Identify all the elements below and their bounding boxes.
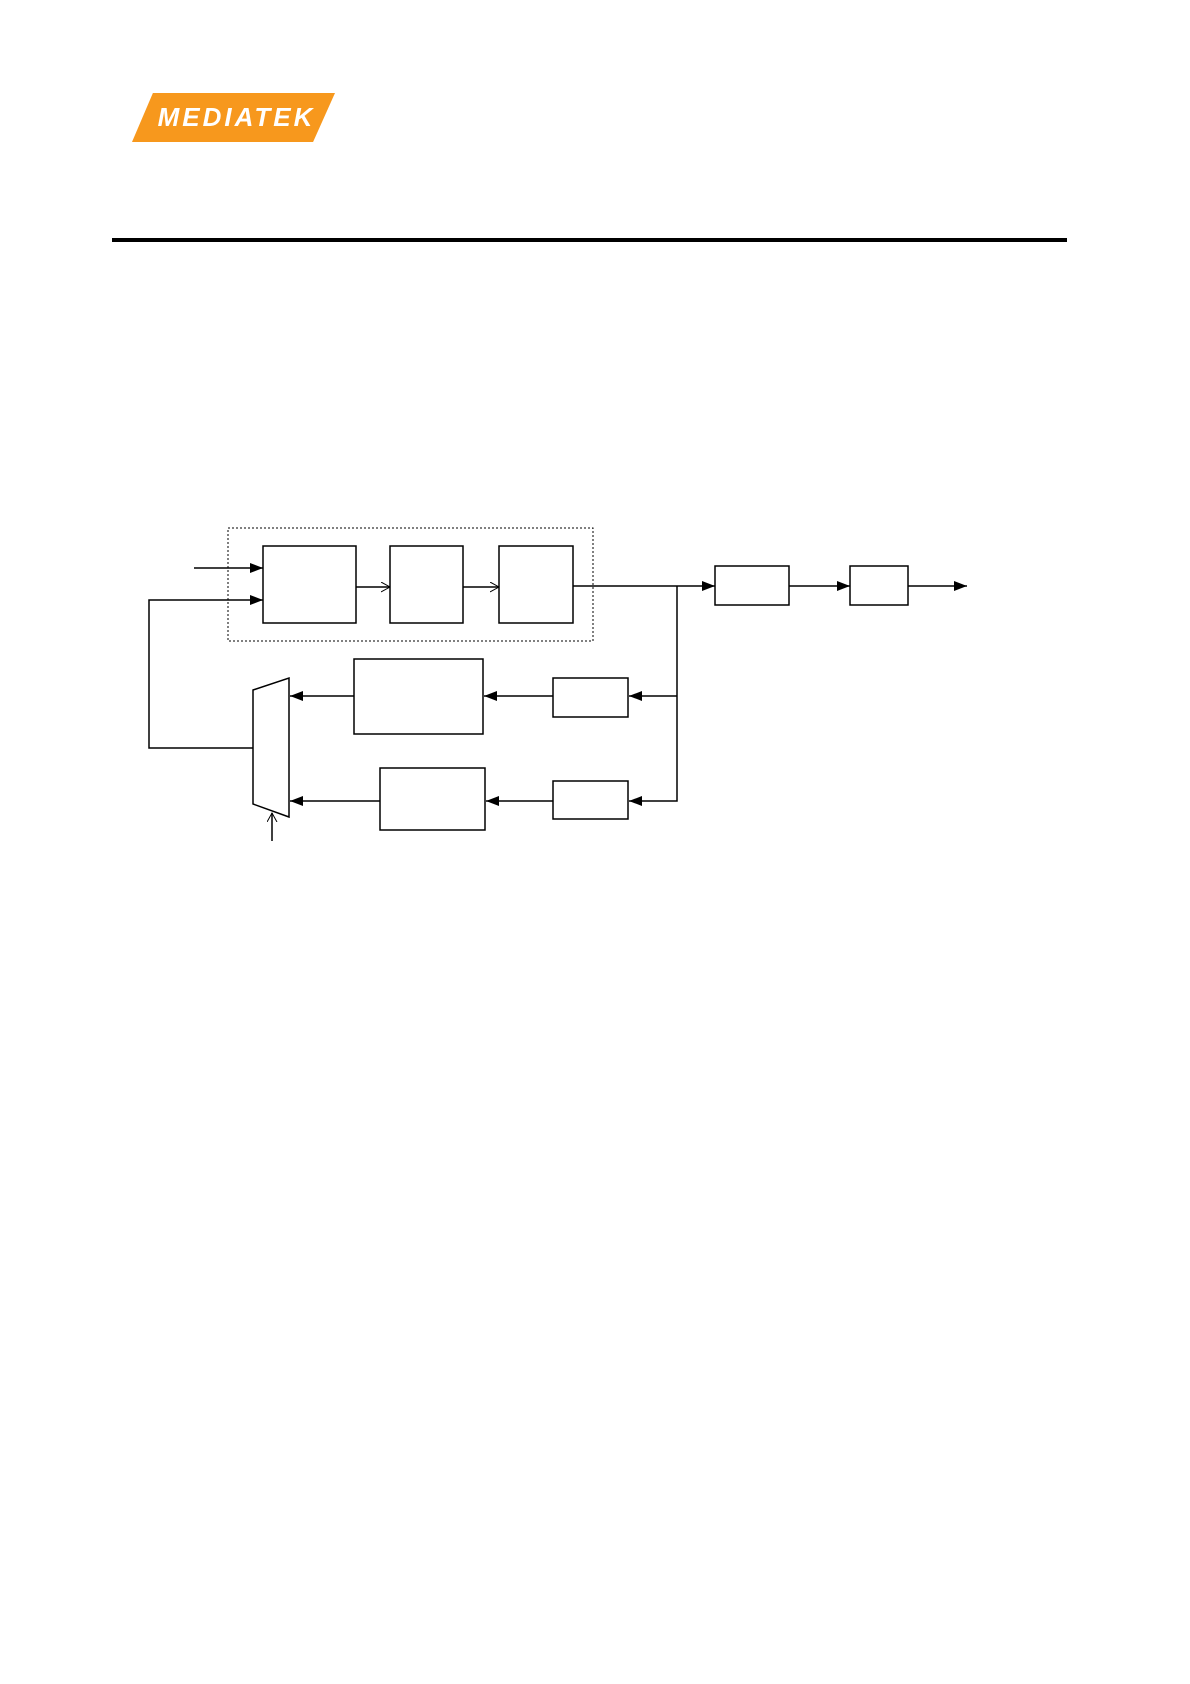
pipeline-box-1 xyxy=(263,546,356,623)
middle-branch-small-box xyxy=(553,678,628,717)
block-diagram-figure xyxy=(0,0,1190,1684)
document-page: MEDIATEK xyxy=(0,0,1190,1684)
arrow-mux-feedback xyxy=(149,600,263,748)
output-box-1 xyxy=(715,566,789,605)
mux-trapezoid xyxy=(253,678,289,817)
bottom-branch-small-box xyxy=(553,781,628,819)
pipeline-box-2 xyxy=(390,546,463,623)
bottom-branch-large-box xyxy=(380,768,485,830)
middle-branch-large-box xyxy=(354,659,483,734)
pipeline-box-3 xyxy=(499,546,573,623)
output-box-2 xyxy=(850,566,908,605)
block-diagram-svg xyxy=(0,0,1190,1684)
wire-tap-vertical-to-bottom-small-box xyxy=(629,586,677,801)
